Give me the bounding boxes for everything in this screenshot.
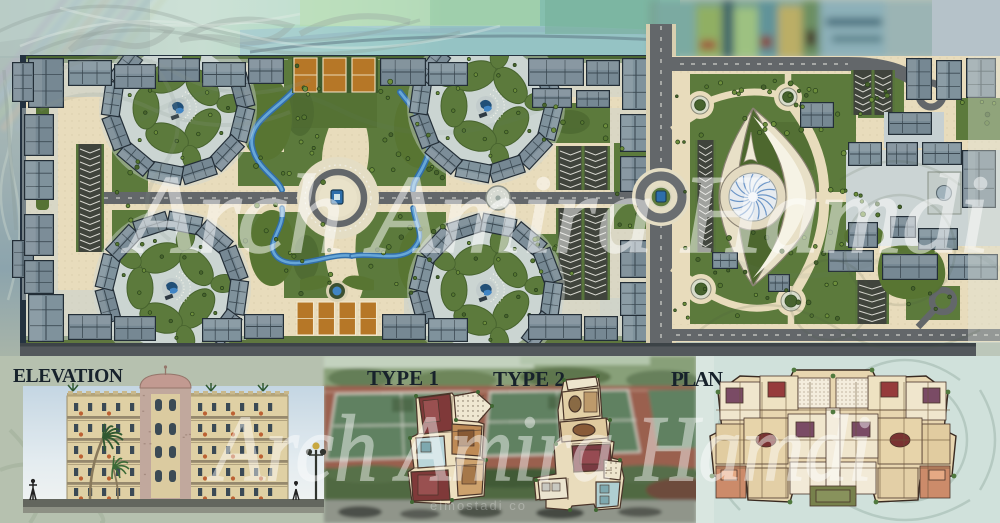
svg-text:TYPE 1: TYPE 1 (367, 366, 439, 390)
svg-text:Arch Amira Hamdi: Arch Amira Hamdi (121, 153, 990, 277)
svg-text:PLAN: PLAN (671, 367, 723, 391)
svg-text:elmostadi co: elmostadi co (430, 498, 527, 513)
svg-text:TYPE 2: TYPE 2 (493, 367, 565, 391)
svg-text:ELEVATION: ELEVATION (13, 366, 123, 387)
svg-text:Arch Amira Hamdi: Arch Amira Hamdi (206, 397, 872, 501)
